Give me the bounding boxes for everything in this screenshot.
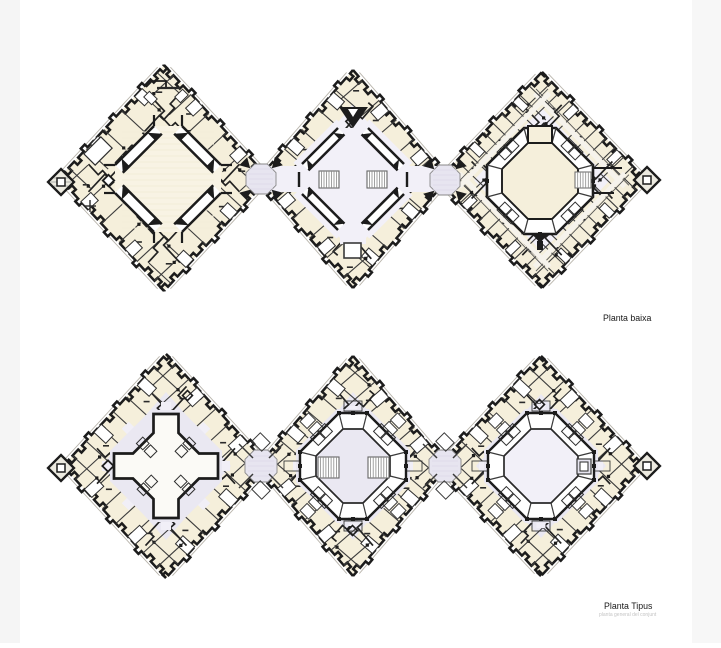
svg-text:planta general del conjunt: planta general del conjunt	[599, 612, 657, 618]
svg-text:Planta baixa: Planta baixa	[603, 313, 652, 323]
svg-text:Planta Tipus: Planta Tipus	[604, 601, 653, 611]
